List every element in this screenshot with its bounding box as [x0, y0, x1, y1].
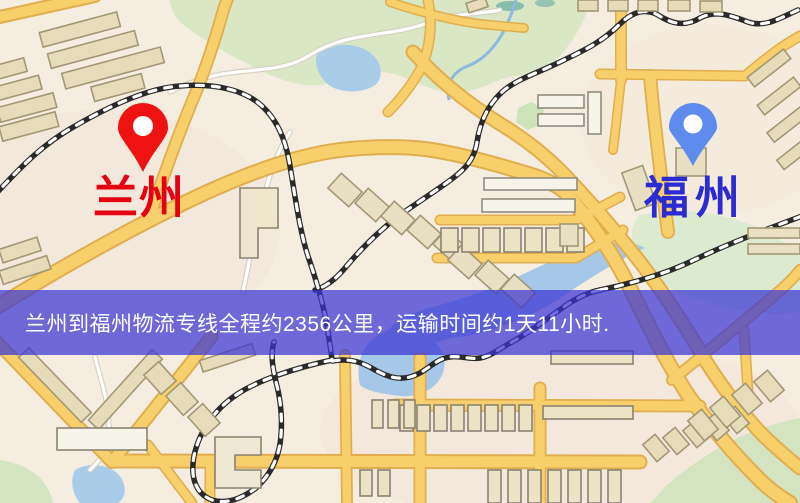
map-image: 兰州 福州 兰州到福州物流专线全程约2356公里，运输时间约1天11小时. — [0, 0, 800, 503]
origin-pin-hole — [133, 116, 153, 136]
destination-pin-body — [669, 103, 717, 166]
route-info-text: 兰州到福州物流专线全程约2356公里，运输时间约1天11小时. — [0, 308, 610, 338]
origin-pin-body — [118, 103, 168, 172]
origin-city-label: 兰州 — [93, 175, 185, 220]
destination-pin-hole — [684, 115, 703, 134]
route-info-banner: 兰州到福州物流专线全程约2356公里，运输时间约1天11小时. — [0, 290, 800, 355]
destination-city-label: 福州 — [644, 175, 746, 220]
origin-pin — [0, 0, 800, 503]
